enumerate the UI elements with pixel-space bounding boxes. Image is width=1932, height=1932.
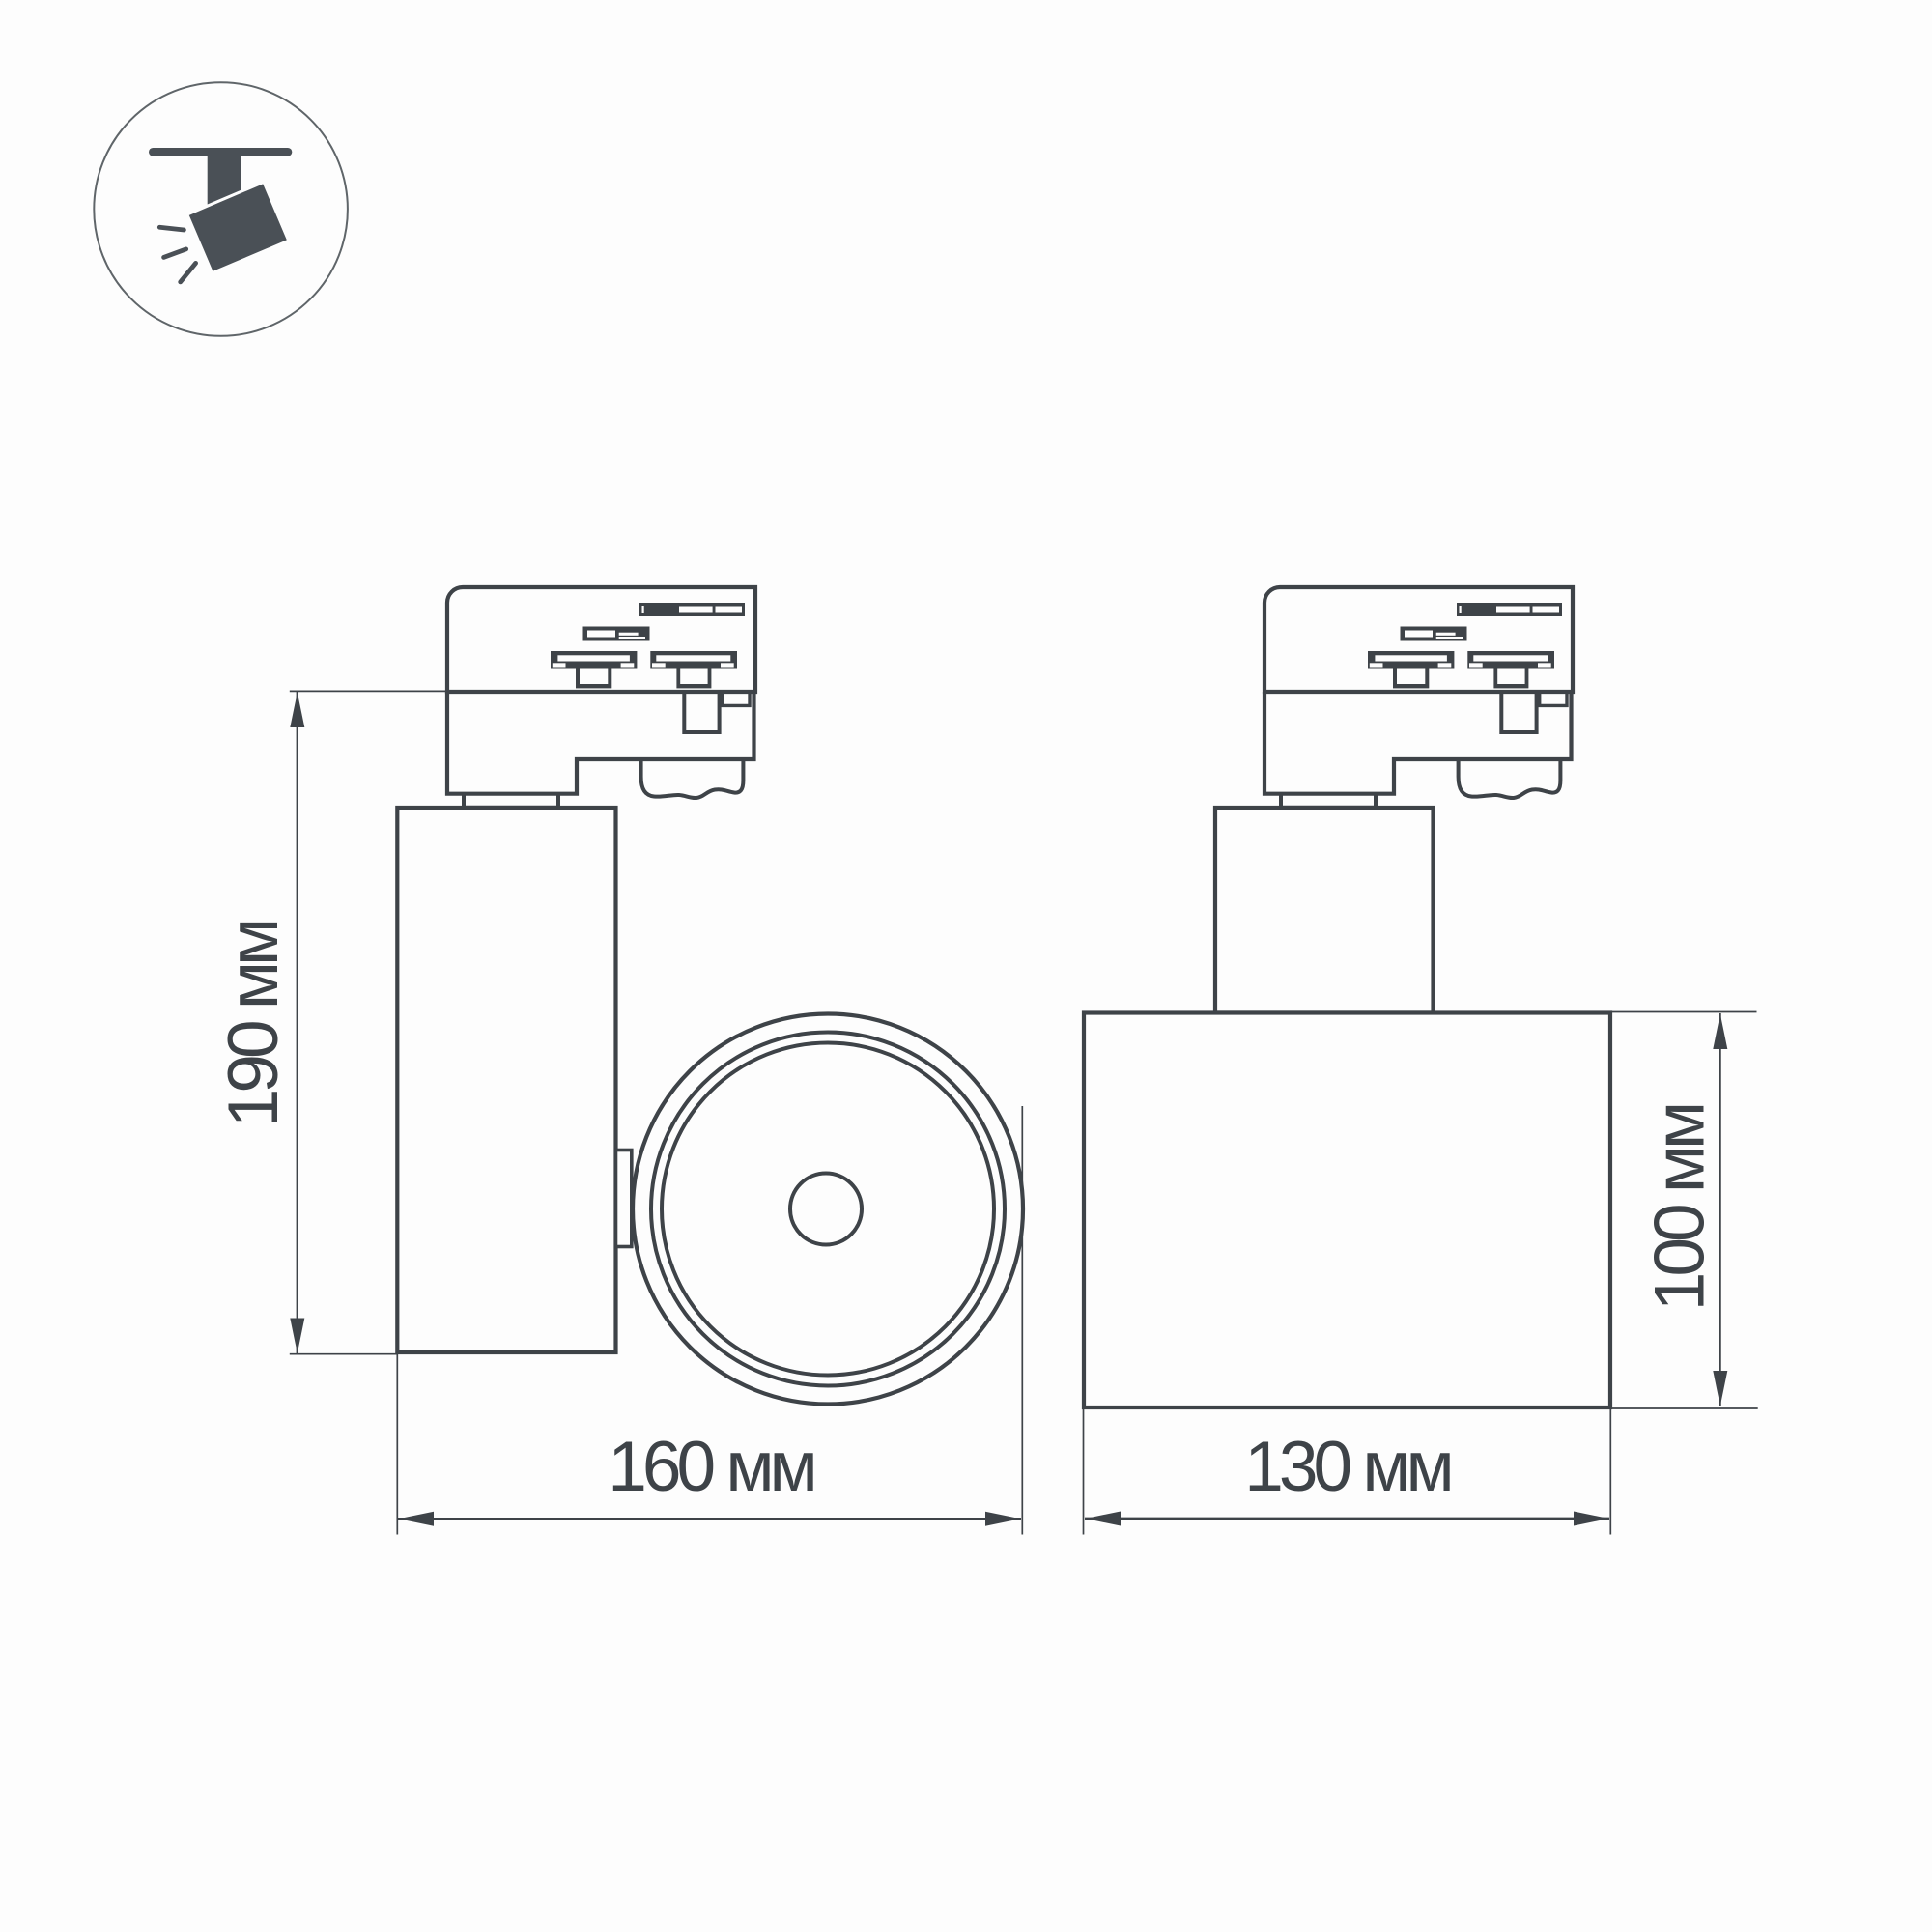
svg-text:160 мм: 160 мм <box>608 1428 813 1506</box>
svg-text:100 мм: 100 мм <box>1641 1105 1719 1311</box>
svg-text:190 мм: 190 мм <box>214 922 293 1127</box>
svg-text:130 мм: 130 мм <box>1244 1428 1450 1506</box>
